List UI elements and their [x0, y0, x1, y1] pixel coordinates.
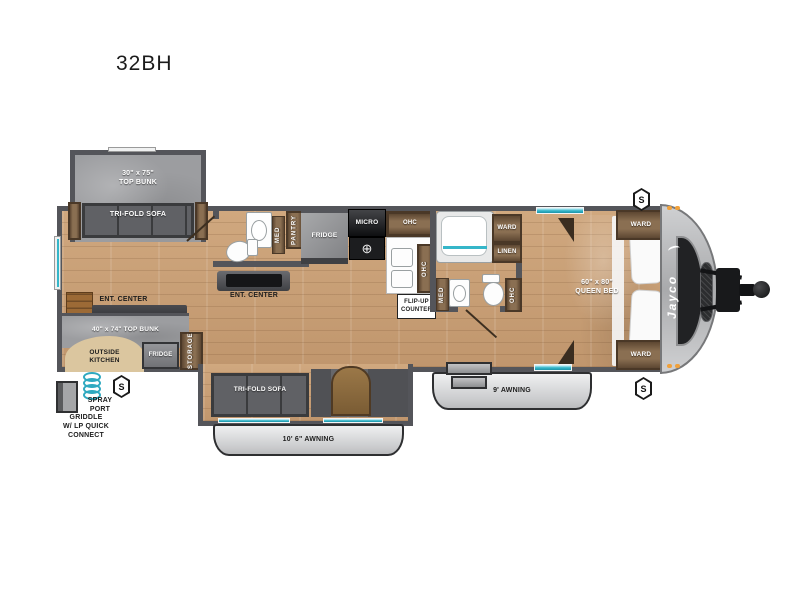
storage-label: STORAGE [182, 334, 201, 368]
outside-kitchen-line1: OUTSIDE [65, 349, 144, 357]
spray-port-label: SPRAY PORT [70, 397, 130, 415]
mainbath-toilet-bowl [483, 282, 504, 306]
rear-bunk-label: 30" x 75" TOP BUNK [88, 170, 188, 188]
mid-ent-tv [226, 274, 282, 287]
linen-label: LINEN [498, 249, 517, 257]
spray-line2: PORT [70, 406, 130, 415]
outside-kitchen-line2: KITCHEN [65, 357, 144, 365]
bathtub [436, 211, 494, 263]
rear-window-glass [57, 239, 59, 287]
kitchen-microwave: MICRO [348, 209, 386, 237]
kitchen-stove: ⊕ [349, 237, 385, 260]
mainbath-ohc: OHC [505, 278, 522, 312]
brand-logo-text: Jayco [664, 254, 680, 340]
mainbath-med-cabinet: MED [436, 278, 449, 311]
kitchen-sink-basin-2 [391, 270, 413, 289]
kitchen-sink [391, 248, 415, 288]
spray-port-coil-icon [83, 372, 101, 400]
entry-door-arch [331, 366, 371, 416]
mainbath-sink [449, 279, 470, 307]
pantry-label: PANTRY [288, 213, 302, 247]
speaker-letter-rear: S [115, 377, 128, 396]
bed-name: QUEEN BED [562, 288, 632, 297]
flip-up-line1: FLIP-UP [404, 299, 429, 307]
mainbath-med-label: MED [437, 279, 448, 310]
griddle-line1: GRIDDLE [44, 414, 128, 423]
speaker-letter-front-bottom: S [637, 379, 650, 398]
outside-fridge: FRIDGE [142, 342, 179, 369]
bathtub-basin [441, 216, 487, 256]
entry-step-2 [451, 376, 487, 389]
mid-ent-label: ENT. CENTER [210, 292, 298, 301]
rear-bunk-size: 30" x 75" [88, 170, 188, 179]
mainbath-ohc-label: OHC [507, 280, 520, 310]
bottom-trifold-sofa: TRI-FOLD SOFA [211, 373, 309, 417]
rear-sofa-label: TRI-FOLD SOFA [110, 211, 166, 220]
midbath-sink-bowl [251, 220, 267, 241]
marker-light-bottom-2 [675, 364, 680, 368]
speaker-letter-front-top: S [635, 190, 648, 209]
rear-ent-center-label: ENT. CENTER [76, 296, 171, 305]
griddle-label: GRIDDLE W/ LP QUICK CONNECT [44, 414, 128, 440]
mid-ent-cabinet [217, 271, 290, 291]
ward-bath-label: WARD [497, 225, 516, 233]
main-awning: 10' 6" AWNING [213, 424, 404, 456]
bed-size: 60" x 80" [562, 279, 632, 288]
marker-light-top-1 [667, 206, 672, 210]
ward-front-top: WARD [616, 210, 666, 240]
rear-trifold-sofa: TRI-FOLD SOFA [82, 203, 194, 238]
rear-bunk-name: TOP BUNK [88, 179, 188, 188]
marker-light-bottom-1 [667, 364, 672, 368]
ward-bath: WARD [492, 214, 522, 243]
bathtub-waterline [443, 246, 487, 249]
ward-front-bottom-label: WARD [631, 351, 652, 359]
bedroom-top-window [536, 207, 584, 214]
ward-front-top-label: WARD [631, 221, 652, 229]
main-awning-label: 10' 6" AWNING [283, 436, 335, 445]
rear-sofa-endcap-left [68, 202, 81, 240]
marker-light-top-2 [675, 206, 680, 210]
kitchen-fridge-base [301, 258, 348, 264]
kitchen-fridge: FRIDGE [301, 211, 348, 259]
outside-fridge-label: FRIDGE [149, 352, 173, 360]
kitchen-fridge-label: FRIDGE [312, 232, 338, 240]
brand-logo: Jayco [664, 254, 680, 340]
midbath-med-label: MED [273, 217, 284, 253]
slide-window-right [323, 418, 383, 423]
ward-front-bottom: WARD [616, 340, 666, 370]
rear-slide-window [108, 147, 156, 152]
speaker-icon-rear: S [113, 375, 130, 398]
speaker-icon-front-bottom: S [635, 377, 652, 400]
page-title: 32BH [116, 52, 173, 76]
slide-window-left [218, 418, 290, 423]
spray-line1: SPRAY [70, 397, 130, 406]
entry-step-1 [446, 362, 492, 375]
midbath-med-cabinet: MED [272, 216, 285, 254]
hitch-frame [716, 268, 740, 312]
floorplan-canvas: 32BH 30" x 75" TOP BUNK TRI-FOLD SOFA EN… [0, 0, 800, 600]
midbath-wall-bottom [213, 261, 309, 267]
hitch-ball [753, 281, 770, 298]
linen-cabinet: LINEN [492, 243, 522, 263]
bottom-sofa-label: TRI-FOLD SOFA [234, 386, 286, 394]
outside-kitchen-label: OUTSIDE KITCHEN [65, 349, 144, 365]
garage-bunk-label: 40" x 74" TOP BUNK [62, 326, 189, 334]
ohc-top-label: OHC [403, 220, 417, 228]
midbath-toilet-tank [247, 239, 258, 256]
griddle-line3: CONNECT [44, 432, 128, 441]
burner-icon: ⊕ [362, 242, 373, 255]
kitchen-ohc-top: OHC [386, 211, 434, 237]
mainbath-sink-bowl [453, 285, 466, 302]
micro-label: MICRO [356, 219, 379, 227]
front-awning-label: 9' AWNING [493, 387, 531, 396]
kitchen-sink-basin-1 [391, 248, 413, 267]
bed-label: 60" x 80" QUEEN BED [562, 279, 632, 297]
flip-up-line2: COUNTER [401, 307, 432, 315]
griddle-line2: W/ LP QUICK [44, 423, 128, 432]
rear-window [54, 236, 61, 290]
